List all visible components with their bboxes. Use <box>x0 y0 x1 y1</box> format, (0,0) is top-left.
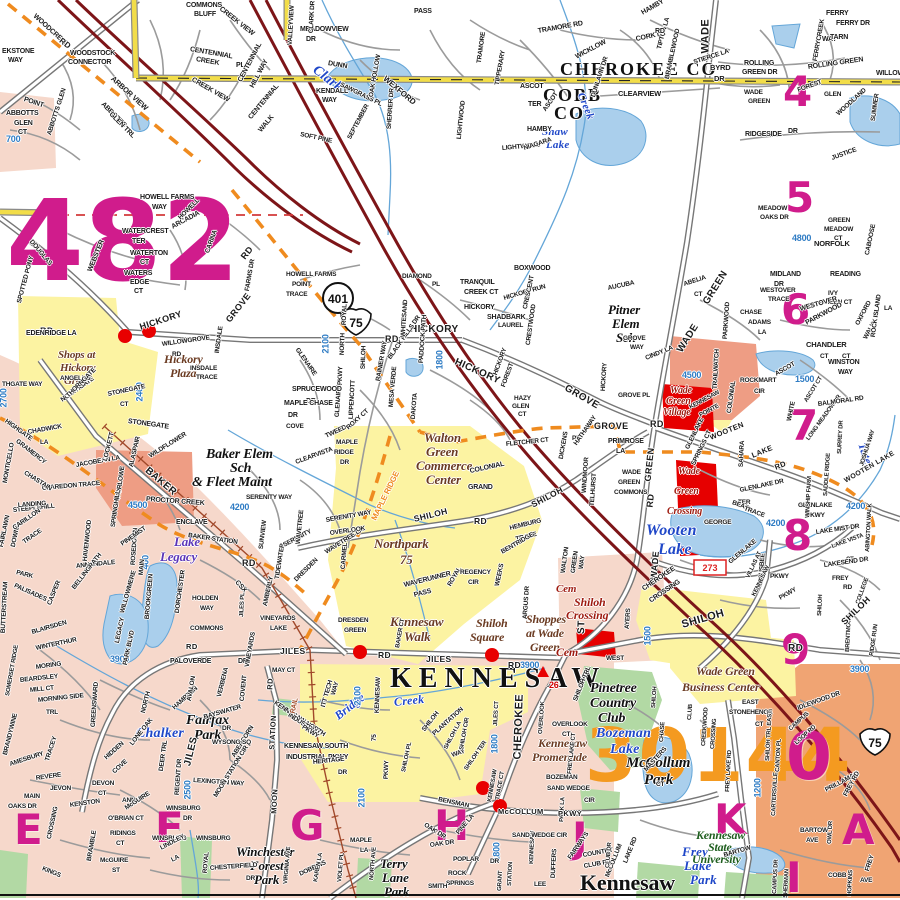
map-label: PALISADES <box>13 584 48 604</box>
map-label: EKSTONE <box>2 48 34 55</box>
map-label: PALOVERDE <box>170 658 211 665</box>
map-label: DR <box>288 412 298 419</box>
map-label: DEER TRL <box>159 741 170 773</box>
map-label: COMMONS <box>614 490 647 497</box>
map-label: FLETCHER CT <box>506 438 549 449</box>
map-label: 5 <box>785 177 814 219</box>
map-label: JILES <box>183 735 200 766</box>
map-label: CIR <box>754 389 765 396</box>
map-label: JILES <box>426 655 452 664</box>
map-label: JUSTICE <box>831 148 858 163</box>
map-label: SPRINGS <box>446 881 474 888</box>
map-label: WAY <box>331 682 341 697</box>
map-label: VINEYARDS <box>260 616 296 623</box>
map-label: TRAMORE <box>477 32 488 64</box>
map-label: COVE <box>112 759 129 776</box>
map-label: PKWY <box>384 761 391 780</box>
map-label: PARK <box>15 571 33 581</box>
map-label: WAY <box>579 556 587 570</box>
map-label: REVERE <box>36 773 62 783</box>
map-label: LAUREL <box>498 323 523 330</box>
map-label: KENNESAW <box>390 665 606 693</box>
map-label: HOWELL FARMS <box>286 272 336 279</box>
map-label: MIDLAND <box>770 271 801 278</box>
map-label: VERBENA <box>217 667 231 698</box>
map-label: ASCOT <box>774 362 796 379</box>
map-label: GREEN <box>748 99 770 106</box>
map-label: SOFT PINE <box>299 132 332 145</box>
map-label: DR <box>306 36 316 43</box>
map-label: GREEN <box>828 218 850 225</box>
map-label: WILLOWMERE <box>120 571 138 615</box>
map-label: FERRY <box>826 10 848 17</box>
map-label: DAKOTA <box>411 393 420 420</box>
map-label: Walton <box>424 431 461 444</box>
map-label: CIR <box>584 798 595 805</box>
map-label: TRANQUIL <box>460 279 495 286</box>
map-label: AVE <box>860 878 872 885</box>
map-label: Club <box>598 712 625 726</box>
map-label: NORTH <box>141 691 153 714</box>
map-label: WAY <box>838 369 853 376</box>
map-label: 2100 <box>322 334 331 353</box>
map-label: 4200 <box>230 503 249 512</box>
map-label: WADE <box>701 19 712 54</box>
map-label: Wade <box>670 386 692 396</box>
map-label: LA <box>758 330 766 337</box>
map-label: RD <box>58 36 73 50</box>
map-label: Kennesaw <box>538 737 587 749</box>
map-label: NORTH <box>340 333 347 355</box>
map-label: TRL <box>46 710 58 717</box>
map-label: CT <box>755 722 763 729</box>
map-label: CABOOSE <box>865 224 878 256</box>
map-label: BAKER <box>143 466 178 498</box>
map-label: BROOKGREEN <box>145 574 155 620</box>
map-label: SAHARA <box>739 441 747 468</box>
map-label: WOODSTOCK <box>70 50 115 57</box>
map-label: GEORGE <box>704 520 731 527</box>
map-label: FREY <box>832 576 849 583</box>
map-label: TRAMORE RD <box>537 20 583 35</box>
map-label: HOWELL FARMS <box>140 194 194 201</box>
map-label: OAKS DR <box>8 804 37 811</box>
map-label: SHILOH TER <box>464 740 489 772</box>
map-label: Kennesaw <box>580 872 675 894</box>
map-label: CARTERSVILLE <box>771 772 779 816</box>
map-label: Green <box>666 397 691 407</box>
map-label: PARK BLVD <box>123 631 137 667</box>
map-label: GROVE <box>594 422 629 431</box>
map-label: SHILOH <box>817 594 824 616</box>
map-label: DRESDEN <box>338 618 368 625</box>
map-label: HERITAGE <box>313 757 345 767</box>
map-label: SHADBARK <box>487 314 525 321</box>
map-label: CASPER <box>47 580 63 606</box>
map-label: Wade Green <box>696 665 755 677</box>
map-label: CT <box>562 732 570 739</box>
map-label: COMMONS <box>190 626 223 633</box>
map-label: Business Center <box>682 681 759 693</box>
map-label: GREEN <box>344 628 366 635</box>
map-label: SHILOH <box>680 608 725 631</box>
map-label: STATION <box>507 862 514 886</box>
map-label: SUMMER <box>871 94 881 122</box>
map-label: AYERS <box>625 609 633 630</box>
map-label: ABBOTTS GLEN <box>47 88 68 137</box>
map-label: McGUIRE <box>124 792 151 813</box>
map-label: ROLLING <box>744 60 774 67</box>
map-label: RD <box>788 644 803 654</box>
map-label: WEEKS <box>495 564 506 588</box>
map-label: CENTENNIAL <box>247 83 280 121</box>
map-label: SHILOH PL <box>401 742 413 773</box>
map-label: GROVE <box>563 383 601 411</box>
map-label: WAY <box>200 606 214 613</box>
map-label: HEMBURG <box>509 519 542 533</box>
map-labels: 482301440456789EFGHJKAICHEROKEE COCOBBCO… <box>0 0 900 900</box>
map-label: TRACEY <box>45 736 59 762</box>
map-label: CIR <box>468 580 479 587</box>
map-label: NORTH AVE <box>369 847 378 880</box>
map-label: DUFFERS <box>551 849 559 879</box>
map-label: WINSBURG <box>166 806 201 813</box>
map-label: GLEN <box>512 404 529 411</box>
map-label: GREEN DR <box>742 69 777 76</box>
map-label: LIGHTWOOD <box>457 101 468 140</box>
map-label: WADE <box>744 90 763 97</box>
map-label: DR <box>788 128 798 135</box>
map-label: ASCOT <box>520 83 544 90</box>
map-label: BALMORAL RD <box>818 396 865 409</box>
map-label: 4500 <box>682 371 701 380</box>
map-label: BLAIRSDEN <box>31 621 68 637</box>
map-label: RD <box>378 651 391 660</box>
map-label: Square <box>470 631 504 643</box>
map-label: CT <box>98 791 106 798</box>
map-label: DEVON <box>92 781 114 788</box>
map-canvas[interactable]: 4017575273 482301440456789EFGHJKAICHEROK… <box>0 0 900 900</box>
map-label: LAKE <box>270 626 287 633</box>
map-label: RD <box>843 585 852 592</box>
map-label: OWL DR <box>827 821 834 844</box>
map-label: PKWY <box>778 588 797 603</box>
map-label: CROSSING <box>47 807 60 841</box>
map-label: WILDFLOWER <box>148 432 188 460</box>
map-label: MAY CT <box>272 668 295 675</box>
map-label: DR <box>340 460 349 467</box>
map-label: GLEN TRL <box>108 111 137 140</box>
map-label: PRIMROSE <box>608 438 644 445</box>
map-label: 75 <box>372 735 379 742</box>
map-label: COLONIAL <box>727 381 738 414</box>
map-label: AVE <box>806 838 818 845</box>
map-label: TARN <box>830 34 848 41</box>
map-label: DR <box>490 859 499 866</box>
map-label: LA <box>616 448 625 455</box>
map-label: MAPLE <box>336 440 358 447</box>
map-label: & Fleet Maint <box>192 476 272 490</box>
map-label: DRESDEN <box>294 558 320 584</box>
map-label: STATION <box>268 715 277 750</box>
map-label: Promenade <box>532 751 587 763</box>
map-label: BOXWOOD <box>514 265 550 272</box>
map-label: CT <box>120 402 128 409</box>
map-label: HAMBY <box>640 0 665 17</box>
map-label: McCOLLUM <box>498 808 544 816</box>
map-label: Lake <box>658 542 692 558</box>
map-label: POPLAR <box>453 857 479 864</box>
map-label: LA <box>360 848 368 855</box>
map-label: FERRY DR <box>836 20 870 27</box>
map-label: CT <box>134 288 143 295</box>
map-label: MESA VERDE <box>389 367 399 408</box>
map-label: LAKE <box>751 444 774 459</box>
map-label: MOON <box>270 789 279 814</box>
map-label: MILL CT <box>30 686 55 695</box>
map-label: Northpark <box>374 537 429 550</box>
map-label: DR <box>246 876 255 883</box>
map-label: ABELIA <box>683 275 707 288</box>
map-label: RD <box>650 420 664 429</box>
map-label: INSDALE <box>190 366 217 373</box>
map-label: CINDY LA <box>645 346 674 363</box>
map-label: GREEN <box>618 480 640 487</box>
map-label: CAMPUS DR <box>772 859 780 894</box>
map-label: WILLOWGROVE <box>162 336 211 349</box>
map-label: CT <box>116 841 124 848</box>
map-label: SURREY DR <box>837 420 845 454</box>
map-label: Shiloh <box>476 617 508 629</box>
map-label: WAY <box>8 57 23 64</box>
map-label: Sch <box>230 462 251 476</box>
map-label: TRACE <box>286 292 307 299</box>
map-label: PKWY <box>338 367 345 386</box>
map-label: TRACE <box>196 375 217 382</box>
map-label: RD <box>474 517 487 526</box>
map-label: TRACE <box>768 297 789 304</box>
map-label: GRAND <box>468 484 493 491</box>
map-label: DR <box>714 75 724 83</box>
map-label: PADDOCK PATH <box>419 315 429 364</box>
map-label: PL <box>432 282 440 289</box>
map-label: Hickory <box>164 353 203 365</box>
map-label: SHILOH <box>361 346 368 370</box>
map-label: Cem <box>556 646 578 658</box>
map-label: HAMBY <box>527 126 552 133</box>
map-label: AMBERLY <box>263 576 276 607</box>
map-label: 2500 <box>184 780 193 799</box>
map-label: WOOTEN <box>709 421 745 441</box>
map-label: 75 <box>400 553 413 566</box>
map-label: 1800 <box>491 734 500 753</box>
map-label: KENSTON <box>70 799 101 810</box>
map-label: HOPKINS <box>847 870 854 896</box>
map-label: 8 <box>783 515 812 557</box>
map-label: E <box>14 809 43 851</box>
map-label: ROCKMART <box>740 378 776 385</box>
map-label: EDENRIDGE LA <box>26 330 77 337</box>
map-label: COLONIAL <box>469 461 505 475</box>
map-label: RD <box>266 678 274 690</box>
map-label: CREEK VIEW <box>190 77 230 104</box>
map-label: GROVE PL <box>618 393 650 400</box>
map-label: CHASE <box>740 310 762 317</box>
map-label: RAINIER WAY <box>376 341 389 382</box>
map-label: HICKORY <box>410 325 459 335</box>
map-label: ENCLAVE <box>176 519 208 526</box>
map-label: LAKE RD <box>623 837 639 865</box>
map-label: KENNESAW SOUTH <box>284 743 348 750</box>
map-label: CREEK VIEW <box>218 6 256 38</box>
map-label: GLEN <box>14 120 33 127</box>
map-label: PROCTOR CREEK <box>146 496 205 507</box>
map-label: WAVETREE <box>296 510 306 545</box>
map-label: WEST <box>606 656 624 663</box>
map-label: FARMS DR <box>245 259 257 292</box>
map-label: 4200 <box>846 502 865 511</box>
map-label: at Wade <box>526 627 564 639</box>
map-label: LAKESEND DR <box>824 557 869 570</box>
map-label: SAND WEDGE CIR <box>512 833 567 840</box>
map-label: DIAMOND <box>402 274 432 281</box>
map-label: CREEK CT <box>464 289 498 296</box>
map-label: SHILOH <box>651 686 658 708</box>
map-label: TRAILWATCH <box>713 349 722 389</box>
map-label: LEGACY <box>115 618 127 645</box>
map-label: GREEN <box>644 447 657 482</box>
map-label: COVENT <box>240 676 249 702</box>
map-label: AUCUBA <box>607 281 635 293</box>
map-label: CT <box>518 412 526 419</box>
map-label: SHILOH <box>530 486 564 510</box>
map-label: CLEARVIEW <box>618 90 661 98</box>
map-label: Creek <box>393 693 424 708</box>
map-label: SHERRER DR <box>387 89 396 130</box>
map-label: Cem <box>556 584 576 595</box>
map-label: PARKWOOD <box>723 302 732 340</box>
map-label: CHEROKEE <box>513 694 526 760</box>
map-label: A <box>842 809 874 851</box>
map-label: TELHURST <box>590 473 599 506</box>
map-label: WAY <box>630 345 644 352</box>
map-label: MAIN <box>139 560 147 576</box>
map-label: Walk <box>404 630 430 643</box>
map-label: WATERS <box>124 270 152 277</box>
map-label: BRAMBLE <box>87 830 99 862</box>
map-label: OAKS DR <box>760 215 789 222</box>
map-label: SERENITY WAY <box>325 510 371 524</box>
map-label: SMITH <box>428 884 447 891</box>
map-label: WADE <box>622 470 641 477</box>
map-label: GLENLAKE <box>798 503 832 510</box>
map-label: STONEGATE <box>128 418 170 431</box>
map-label: 26 <box>549 681 559 690</box>
map-label: POINT <box>23 96 45 109</box>
map-label: HAVENWOOD <box>83 520 94 562</box>
map-label: Pitner <box>608 303 640 316</box>
map-label: TIPPERARY <box>495 50 508 86</box>
map-label: O'BRIAN CT <box>108 816 144 823</box>
map-neatline <box>0 894 900 896</box>
map-label: ADAMS <box>748 320 771 327</box>
map-label: ABINGTON WALK <box>865 503 874 552</box>
map-label: JILES PL <box>239 592 246 617</box>
map-label: TER <box>132 238 145 245</box>
map-label: WINSBURG <box>196 836 231 843</box>
map-label: 1500 <box>644 626 653 645</box>
map-label: CONNECTOR <box>68 59 111 66</box>
map-label: CHADWICK <box>27 424 62 436</box>
map-label: GREEN <box>702 269 730 306</box>
map-label: SAND WEDGE <box>547 786 590 793</box>
map-label: THGATE WAY <box>2 382 42 389</box>
map-label: TRACE <box>743 507 765 520</box>
map-label: REGENCY <box>460 570 491 577</box>
map-label: JILES CT <box>493 701 500 726</box>
map-label: COBB <box>828 873 846 880</box>
map-label: VIOLET PL <box>337 852 346 882</box>
map-label: CLEARVISTA <box>295 447 334 466</box>
map-label: MEADOW <box>824 227 853 234</box>
map-label: GLEN <box>824 92 841 99</box>
map-label: HICKORY <box>139 310 184 332</box>
map-label: OAK HOLLOW <box>369 55 383 99</box>
map-label: ABBOTTS <box>6 110 38 117</box>
map-label: Wooten <box>646 523 697 539</box>
map-label: BRANDYWINE <box>3 713 20 756</box>
map-label: Country <box>590 697 636 711</box>
map-label: Bozeman <box>596 727 651 741</box>
map-label: INSDALE <box>215 326 225 354</box>
map-label: RIDGE RUN <box>869 624 879 656</box>
map-label: RIDGE <box>334 450 354 457</box>
map-label: SHILOH <box>413 507 449 524</box>
map-label: BARTOW <box>800 828 828 835</box>
map-label: Crossing <box>667 507 702 517</box>
map-label: GRANT <box>497 870 504 891</box>
map-label: Elem <box>612 317 639 330</box>
map-label: Shoppes <box>526 613 566 625</box>
map-label: BYRD <box>710 64 730 72</box>
map-label: OVERLOOK <box>538 701 546 734</box>
map-label: PKWY <box>770 574 789 581</box>
map-label: SADDLE RIDGE <box>823 453 832 496</box>
map-label: RIDGESIDE <box>745 131 782 138</box>
map-label: SPRUCEWOOD <box>292 386 342 393</box>
map-label: LA <box>40 440 48 447</box>
map-label: BOZEMAN <box>546 775 577 782</box>
map-label: WAY <box>152 204 167 211</box>
map-label: FREY <box>865 855 876 873</box>
map-label: TRACE <box>22 529 43 547</box>
map-label: Green <box>426 445 458 458</box>
map-label: GLENAIRE <box>293 348 317 378</box>
map-label: WINSTON <box>828 359 860 366</box>
map-label: IDLEWOOD DR <box>797 691 841 712</box>
map-label: DICKENS <box>559 432 570 461</box>
map-label: Center <box>426 473 461 486</box>
map-label: CLUB <box>687 704 694 720</box>
map-label: 2100 <box>358 788 367 807</box>
map-label: RD <box>508 661 521 670</box>
map-label: JACOBEAN LA <box>75 456 120 470</box>
map-label: BEARDSLEY <box>20 674 59 684</box>
map-label: ROYAL <box>342 304 349 325</box>
map-label: LIPPENCOTT <box>349 380 358 419</box>
map-label: EDGE <box>130 279 149 286</box>
map-label: TER <box>528 101 541 108</box>
